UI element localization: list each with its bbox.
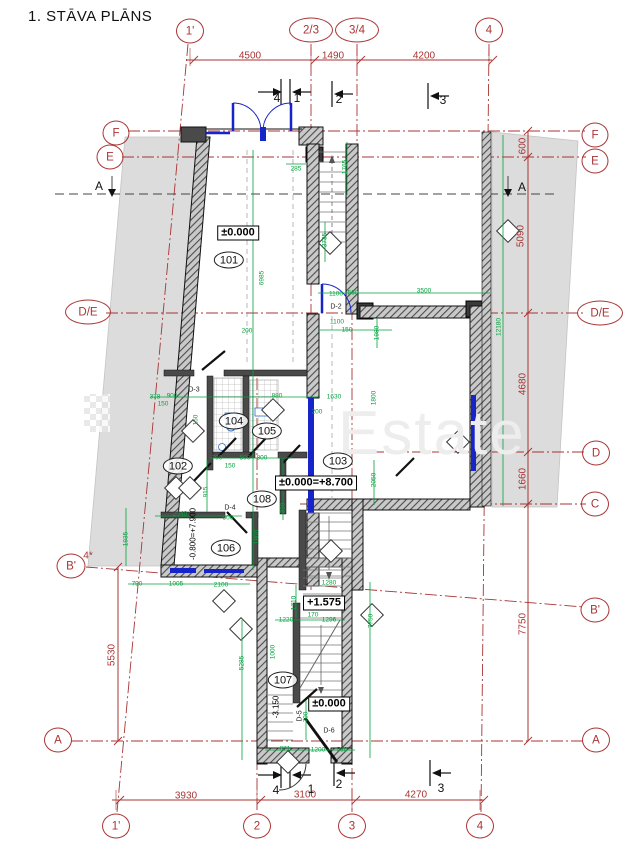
watermark-logo [84, 394, 110, 432]
floor-plan-page: Estate 1. STĀVA PLĀNS 1'2/33/441'234FED/… [0, 0, 631, 863]
watermark: Estate [338, 398, 526, 469]
page-title: 1. STĀVA PLĀNS [28, 8, 152, 25]
floor-plan-drawing [0, 0, 631, 863]
